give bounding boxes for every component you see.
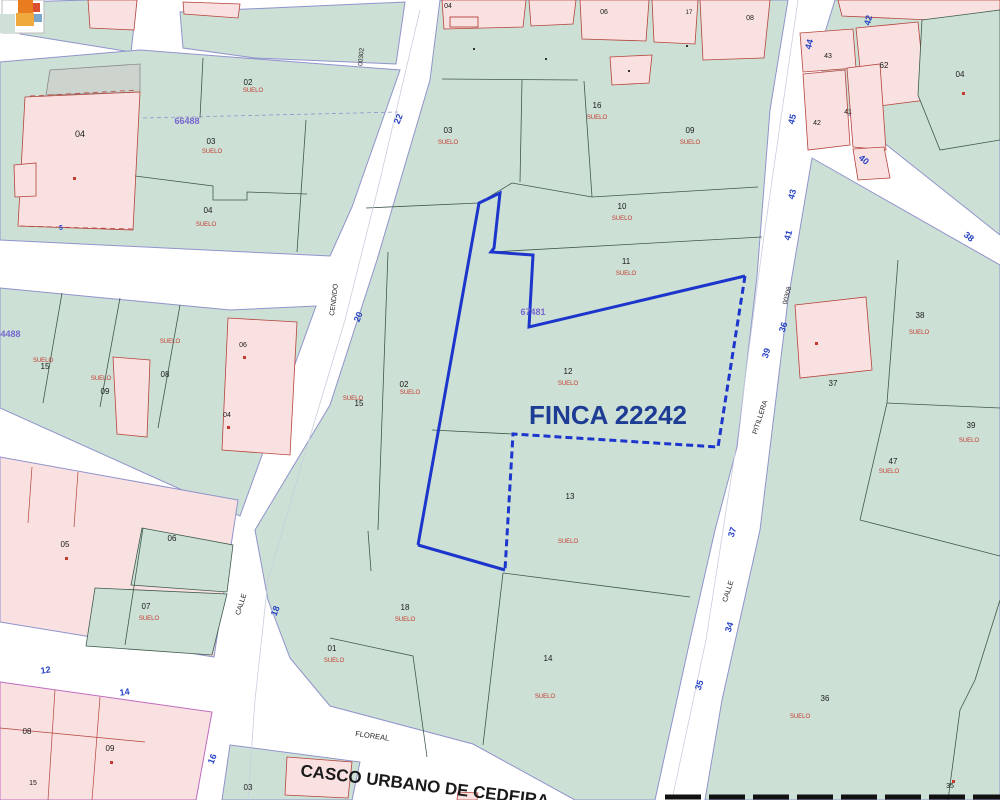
suelo-label: SUELO: [438, 140, 459, 146]
parcel-number-label: 15: [29, 780, 37, 787]
cadastral-map-view: FINCA 22242 - CASCO URBANO DE CEDEIRA 04…: [0, 0, 1000, 800]
building-red-mark: [243, 356, 246, 359]
map-logo-fragment: [16, 13, 34, 26]
parcel-number-label: 18: [401, 603, 410, 612]
parcel-number-label: 08: [23, 727, 32, 736]
parcel-number-label: 41: [844, 109, 852, 116]
map-ref-label: 64488: [0, 329, 21, 339]
parcel-number-label: 03: [207, 137, 216, 146]
parcel-number-label: 04: [204, 206, 213, 215]
suelo-label: SUELO: [587, 115, 608, 121]
building: [853, 147, 890, 180]
parcel-number-label: 04: [223, 412, 231, 419]
parcel-number-label: 04: [956, 70, 965, 79]
building-06-top: [580, 0, 649, 41]
parcel-number-label: 01: [328, 644, 337, 653]
suelo-label: SUELO: [160, 339, 181, 345]
building-red-mark: [962, 92, 965, 95]
building-dark-mark: [473, 48, 475, 50]
parcel-number-label: 05: [61, 540, 70, 549]
street-number-label: 5: [59, 225, 63, 232]
finca-label: FINCA 22242: [529, 400, 687, 430]
suelo-label: SUELO: [909, 330, 930, 336]
suelo-label: SUELO: [616, 271, 637, 277]
parcel-number-label: 35: [946, 783, 954, 790]
map-ref-label: 66488: [174, 116, 199, 126]
building-sliver: [113, 357, 150, 437]
building-04-top: [442, 0, 526, 29]
suelo-label: SUELO: [343, 396, 364, 402]
map-ref-label: 67481: [520, 307, 545, 317]
parcel-number-label: 16: [593, 101, 602, 110]
street-number-label: 14: [119, 686, 130, 697]
street-number-label: 12: [40, 664, 51, 675]
suelo-label: SUELO: [324, 658, 345, 664]
suelo-label: SUELO: [196, 222, 217, 228]
parcel-number-label: 10: [618, 202, 627, 211]
map-logo-fragment: [0, 14, 15, 33]
parcel-number-label: 04: [444, 3, 452, 10]
parcel-number-label: 17: [686, 10, 693, 16]
parcel-number-label: 37: [829, 379, 838, 388]
map-logo-fragment: [33, 3, 40, 12]
parcel-number-label: 06: [168, 534, 177, 543]
parcel-number-label: 06: [239, 342, 247, 349]
suelo-label: SUELO: [202, 149, 223, 155]
map-logo-fragment: [18, 0, 33, 13]
parcel-number-label: 47: [889, 457, 898, 466]
suelo-label: SUELO: [612, 216, 633, 222]
map-logo-fragment: [34, 14, 42, 22]
building-dark-mark: [628, 70, 630, 72]
suelo-label: SUELO: [790, 714, 811, 720]
parcel-number-label: 08: [161, 370, 170, 379]
suelo-label: SUELO: [139, 616, 160, 622]
parcel-number-label: 08: [746, 15, 754, 22]
parcel-number-label: 09: [106, 744, 115, 753]
suelo-label: SUELO: [558, 381, 579, 387]
building-dark-mark: [545, 58, 547, 60]
building-43: [800, 29, 856, 72]
parcel-number-label: 42: [813, 120, 821, 127]
building-08-top: [700, 0, 770, 60]
building-red-mark: [65, 557, 68, 560]
map-canvas[interactable]: 0406081716030910111202151318011402030404…: [0, 0, 1000, 800]
parcel-number-label: 12: [564, 367, 573, 376]
building-red-mark: [815, 342, 818, 345]
parcel-number-label: 03: [444, 126, 453, 135]
building: [610, 55, 652, 85]
suelo-label: SUELO: [680, 140, 701, 146]
building-06-west: [222, 318, 297, 455]
parcel-number-label: 11: [622, 257, 631, 266]
suelo-label: SUELO: [879, 469, 900, 475]
building-red-mark: [227, 426, 230, 429]
parcel-number-label: 39: [967, 421, 976, 430]
suelo-label: SUELO: [395, 617, 416, 623]
parcel-number-label: 09: [101, 387, 110, 396]
parcel-number-label: 07: [142, 602, 151, 611]
parcel-number-label: 02: [244, 78, 253, 87]
building-dark-mark: [686, 45, 688, 47]
building-41: [847, 64, 886, 150]
suelo-label: SUELO: [558, 539, 579, 545]
suelo-label: SUELO: [959, 438, 980, 444]
suelo-label: SUELO: [91, 376, 112, 382]
building: [652, 0, 698, 44]
suelo-label: SUELO: [33, 358, 54, 364]
suelo-label: SUELO: [243, 88, 264, 94]
parcel-number-label: 36: [821, 694, 830, 703]
suelo-label: SUELO: [400, 390, 421, 396]
building: [529, 0, 576, 26]
parcel-number-label: 06: [600, 9, 608, 16]
parcel-number-label: 04: [75, 129, 85, 139]
parcel-number-label: 03: [244, 783, 253, 792]
parcel-number-label: 14: [544, 654, 553, 663]
building-annex: [14, 163, 36, 197]
parcel-number-label: 43: [824, 53, 832, 60]
parcel-number-label: 62: [880, 61, 889, 70]
parcel-number-label: 09: [686, 126, 695, 135]
parcel-number-label: 02: [400, 380, 409, 389]
parcel-number-label: 13: [566, 492, 575, 501]
building-04-west: [18, 92, 140, 230]
suelo-label: SUELO: [535, 694, 556, 700]
building-east: [795, 297, 872, 378]
parcel-number-label: 38: [916, 311, 925, 320]
building-red-mark: [73, 177, 76, 180]
building-red-mark: [110, 761, 113, 764]
building-42: [803, 70, 850, 150]
building: [88, 0, 137, 30]
